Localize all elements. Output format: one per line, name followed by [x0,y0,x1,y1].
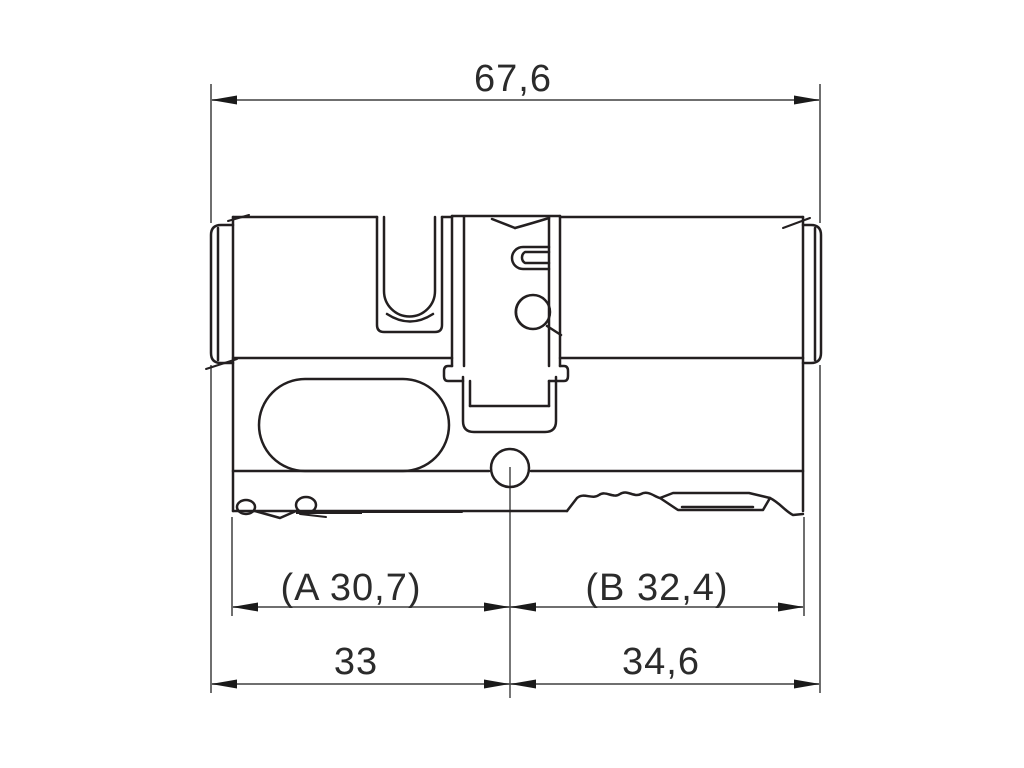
body-oval-recess [259,379,449,471]
arrow-left-total-left [211,680,237,689]
tick-right-top [783,218,810,228]
dimension-label-left-total: 33 [334,641,378,683]
foot-serrated-edge [567,492,660,511]
pin-slot-inner [522,252,549,263]
cam-left-step [444,366,463,381]
right-end-cap-outline [803,225,821,363]
follower-window [377,217,442,332]
drawing-canvas: 67,6 (A 30,7) (B 32,4) 33 34,6 [0,0,1024,768]
dimension-label-overall: 67,6 [474,58,552,100]
cylinder-technical-drawing: 67,6 (A 30,7) (B 32,4) 33 34,6 [0,0,1024,768]
dimension-label-a: (A 30,7) [280,567,421,609]
arrow-b-right [778,603,804,612]
arrow-a-right [484,603,510,612]
arrow-overall-right [794,96,820,105]
foot-tail-curve [770,498,803,515]
dimension-label-b: (B 32,4) [585,567,728,609]
cam [444,366,568,432]
arrow-left-total-right [484,680,510,689]
pin-hole-edge-arc [516,296,527,328]
cylinder-body [233,217,803,511]
cam-housing [452,216,561,366]
cam-right-step [549,366,568,381]
arrow-right-total-right [794,680,820,689]
cylinder-part [206,215,821,518]
arrow-a-left [232,603,258,612]
right-end-cap [803,225,821,363]
cam-body [463,377,556,432]
dimension-labels: 67,6 (A 30,7) (B 32,4) 33 34,6 [280,58,728,683]
housing-top-arc [515,218,549,228]
left-end-cap [211,225,233,363]
foot-tick-detail [300,514,326,517]
follower-cup-arc [387,314,433,322]
pin-slot-outer [512,247,549,269]
arrow-right-total-left [510,680,536,689]
housing-top-chamfer [492,219,515,228]
left-end-cap-outline [211,225,233,363]
junction-ticks [206,215,810,369]
follower-window-inner-u [384,217,435,317]
arrow-b-left [510,603,536,612]
dimension-label-right-total: 34,6 [622,641,700,683]
arrow-overall-left [211,96,237,105]
mounting-foot [233,449,803,518]
